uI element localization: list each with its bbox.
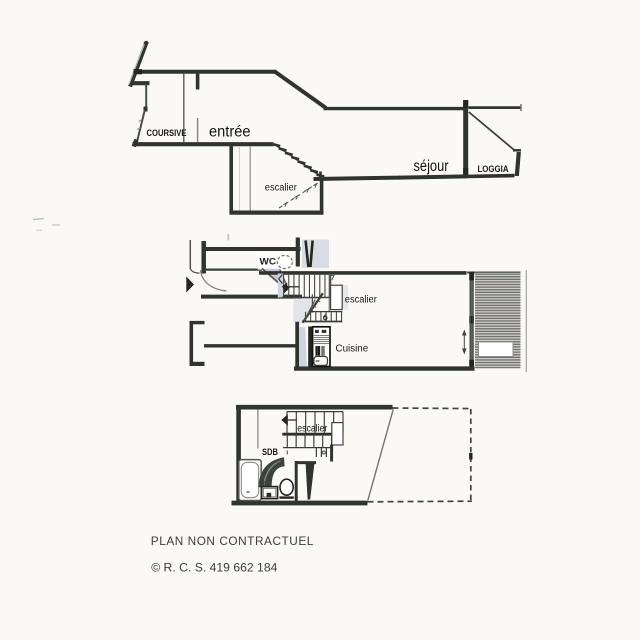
svg-text:COURSIVE: COURSIVE — [147, 128, 187, 139]
svg-text:Cuisine: Cuisine — [336, 344, 369, 355]
svg-text:© R. C. S. 419 662 184: © R. C. S. 419 662 184 — [151, 561, 277, 575]
svg-text:escalier: escalier — [265, 183, 298, 194]
svg-text:PLAN NON CONTRACTUEL: PLAN NON CONTRACTUEL — [151, 534, 314, 548]
svg-text:SDB: SDB — [262, 447, 278, 457]
svg-text:escalier: escalier — [297, 424, 328, 435]
svg-text:entrée: entrée — [209, 124, 251, 141]
svg-text:escalier: escalier — [345, 295, 378, 306]
svg-text:LOGGIA: LOGGIA — [478, 164, 509, 175]
svg-text:WC: WC — [260, 256, 277, 267]
svg-text:séjour: séjour — [414, 158, 449, 175]
